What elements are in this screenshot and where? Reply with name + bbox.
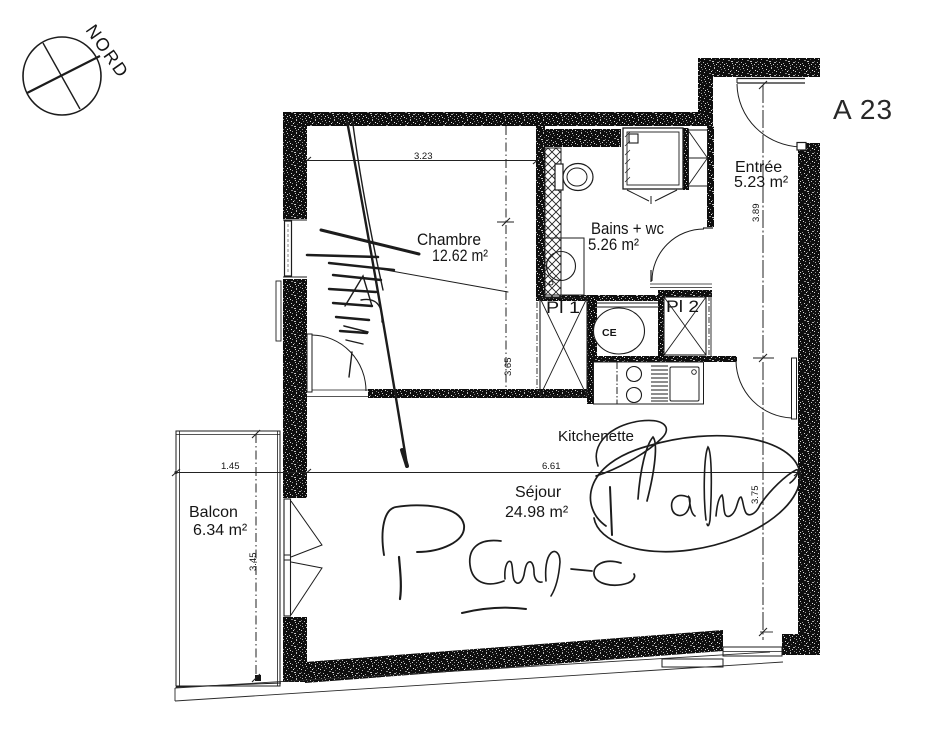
svg-text:6.34 m²: 6.34 m²	[193, 522, 248, 539]
svg-text:12.62 m²: 12.62 m²	[432, 247, 488, 265]
svg-text:A 23: A 23	[833, 94, 893, 125]
svg-text:3.65: 3.65	[503, 358, 514, 377]
svg-text:Kitchenette: Kitchenette	[558, 429, 634, 445]
svg-text:3.23: 3.23	[414, 151, 433, 162]
svg-text:24.98 m²: 24.98 m²	[505, 504, 569, 521]
svg-text:Balcon: Balcon	[189, 504, 238, 521]
svg-text:Séjour: Séjour	[515, 484, 562, 501]
svg-text:5.23 m²: 5.23 m²	[734, 174, 789, 191]
svg-text:3.89: 3.89	[751, 204, 762, 223]
svg-text:Pl 1: Pl 1	[546, 299, 580, 317]
svg-text:CE: CE	[602, 327, 617, 339]
svg-text:1.45: 1.45	[221, 461, 240, 472]
svg-text:6.61: 6.61	[542, 461, 561, 472]
svg-text:5.26 m²: 5.26 m²	[588, 236, 639, 254]
svg-text:3.75: 3.75	[750, 486, 761, 505]
svg-text:Pl 2: Pl 2	[666, 298, 699, 316]
svg-text:3.45: 3.45	[248, 553, 259, 572]
